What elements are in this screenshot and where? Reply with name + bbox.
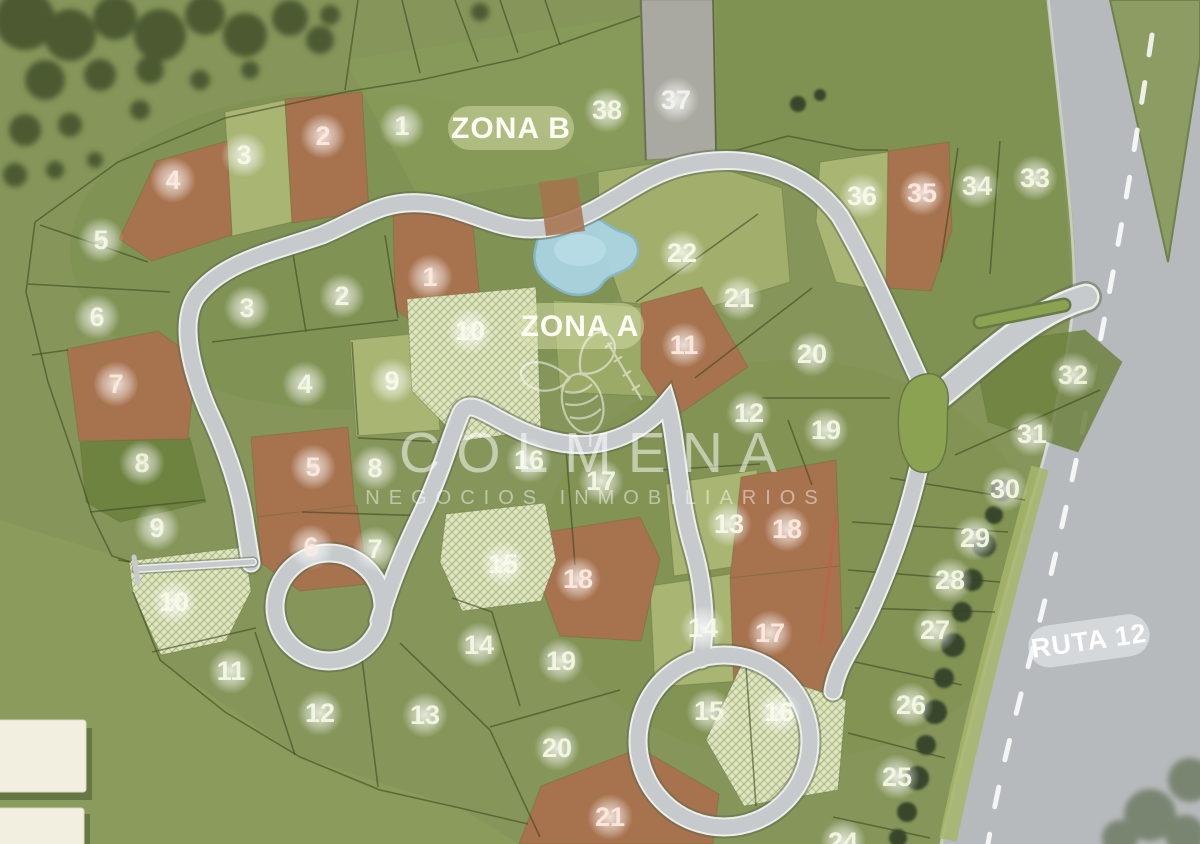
lot-marker-outer-30[interactable]: 30 (982, 466, 1028, 512)
lot-number: 13 (410, 700, 440, 730)
lot-number: 11 (670, 330, 699, 360)
lot-number: 3 (236, 140, 251, 170)
lot-number: 31 (1017, 419, 1047, 449)
lot-marker-outer-34[interactable]: 34 (954, 163, 1000, 209)
lot-number: 26 (896, 690, 926, 720)
lot-marker-outer-9[interactable]: 9 (134, 505, 180, 551)
lot-marker-outer-1[interactable]: 1 (379, 103, 425, 149)
lot-number: 2 (315, 121, 330, 151)
lot-number: 19 (546, 646, 576, 676)
lot-number: 13 (714, 509, 744, 539)
lot-number: 1 (394, 111, 409, 141)
lot-number: 8 (134, 448, 149, 478)
lot-number: 36 (847, 181, 877, 211)
info-card[interactable] (0, 808, 84, 844)
lot-number: 29 (960, 523, 990, 553)
lot-number: 14 (688, 613, 718, 643)
lot-number: 6 (89, 302, 104, 332)
lot-marker-outer-37[interactable]: 37 (653, 77, 699, 123)
lot-marker-outer-38[interactable]: 38 (584, 87, 630, 133)
lot-number: 5 (305, 452, 320, 482)
lot-marker-inner-9[interactable]: 9 (369, 358, 415, 404)
lot-marker-outer-27[interactable]: 27 (912, 607, 958, 653)
lot-marker-inner-17[interactable]: 17 (747, 610, 793, 656)
lot-number: 8 (367, 453, 382, 483)
lot-marker-outer-31[interactable]: 31 (1009, 411, 1055, 457)
lot-marker-outer-12[interactable]: 12 (297, 690, 343, 736)
lot-number: 7 (108, 369, 123, 399)
lot-number: 9 (149, 513, 164, 543)
lot-marker-inner-6[interactable]: 6 (288, 524, 334, 570)
lot-marker-outer-18[interactable]: 18 (555, 556, 601, 602)
lot-marker-inner-22[interactable]: 22 (659, 230, 705, 276)
zona-a-label: ZONA A (516, 303, 644, 349)
lot-number: 9 (384, 366, 399, 396)
lot-marker-outer-3[interactable]: 3 (221, 132, 267, 178)
lot-marker-inner-21[interactable]: 21 (716, 275, 762, 321)
lot-number: 21 (724, 283, 754, 313)
lot-marker-inner-3[interactable]: 3 (224, 285, 270, 331)
lot-number: 14 (464, 630, 494, 660)
lot-number: 16 (764, 697, 794, 727)
lot-number: 32 (1058, 360, 1088, 390)
subdivision-lot-map: 1234567891011121314151617181920212425262… (0, 0, 1200, 844)
brown-crossing-strip (539, 178, 585, 236)
lot-marker-inner-1[interactable]: 1 (407, 254, 453, 300)
lot-number: 33 (1020, 163, 1050, 193)
lot-number: 5 (93, 225, 108, 255)
lot-marker-outer-11[interactable]: 11 (208, 648, 254, 694)
lot-number: 10 (455, 316, 485, 346)
lot-marker-inner-14[interactable]: 14 (680, 605, 726, 651)
lot-number: 4 (297, 369, 312, 399)
lot-number: 35 (907, 178, 937, 208)
lot-number: 12 (305, 698, 335, 728)
lot-marker-outer-32[interactable]: 32 (1050, 352, 1096, 398)
lot-marker-inner-19[interactable]: 19 (803, 407, 849, 453)
lot-marker-outer-20[interactable]: 20 (534, 725, 580, 771)
lot-marker-outer-26[interactable]: 26 (888, 682, 934, 728)
lot-marker-outer-7[interactable]: 7 (93, 361, 139, 407)
lot-number: 19 (811, 415, 841, 445)
lot-number: 21 (595, 802, 625, 832)
lot-marker-inner-16[interactable]: 16 (756, 689, 802, 735)
lot-marker-outer-4[interactable]: 4 (150, 157, 196, 203)
lot-number: 28 (935, 565, 965, 595)
lot-number: 20 (542, 733, 572, 763)
lot-number: 15 (488, 549, 518, 579)
lot-number: 2 (334, 281, 349, 311)
zona-a-label-text: ZONA A (521, 310, 640, 343)
zona-b-label: ZONA B (448, 106, 574, 150)
lot-marker-outer-6[interactable]: 6 (74, 294, 120, 340)
lot-number: 1 (422, 262, 437, 292)
lot-marker-outer-5[interactable]: 5 (78, 217, 124, 263)
lot-marker-inner-10[interactable]: 10 (447, 308, 493, 354)
lot-number: 15 (694, 696, 724, 726)
teardrop-island (898, 374, 948, 473)
watermark-tagline: NEGOCIOS INMOBILIARIOS (365, 487, 826, 509)
lot-number: 25 (882, 762, 912, 792)
lot-marker-inner-2[interactable]: 2 (319, 273, 365, 319)
lot-marker-outer-28[interactable]: 28 (927, 557, 973, 603)
lot-marker-outer-35[interactable]: 35 (899, 170, 945, 216)
lot-number: 34 (962, 171, 992, 201)
lot-number: 6 (303, 532, 318, 562)
lot-marker-inner-20[interactable]: 20 (789, 331, 835, 377)
lot-number: 24 (828, 827, 858, 844)
lot-number: 10 (159, 587, 189, 617)
lot-marker-inner-18[interactable]: 18 (764, 506, 810, 552)
lot-number: 18 (563, 564, 593, 594)
lot-marker-inner-8[interactable]: 8 (352, 445, 398, 491)
lot-marker-outer-19[interactable]: 19 (538, 638, 584, 684)
lot-marker-outer-29[interactable]: 29 (952, 515, 998, 561)
lot-number: 18 (772, 514, 802, 544)
lot-number: 3 (239, 293, 254, 323)
lot-number: 38 (592, 95, 622, 125)
lot-number: 17 (755, 618, 785, 648)
corner-info-cards (0, 720, 92, 844)
lot-marker-outer-15[interactable]: 15 (480, 541, 526, 587)
lot-marker-inner-5[interactable]: 5 (290, 444, 336, 490)
lot-number: 22 (667, 238, 697, 268)
lot-marker-inner-7[interactable]: 7 (352, 526, 398, 572)
zona-b-label-text: ZONA B (451, 112, 571, 145)
lot-number: 30 (990, 474, 1020, 504)
lot-marker-inner-4[interactable]: 4 (282, 361, 328, 407)
lot-marker-outer-14[interactable]: 14 (456, 622, 502, 668)
lot-number: 37 (661, 85, 691, 115)
lot-marker-outer-25[interactable]: 25 (874, 754, 920, 800)
lot-marker-outer-36[interactable]: 36 (839, 173, 885, 219)
lot-marker-outer-13[interactable]: 13 (402, 692, 448, 738)
lot-marker-outer-10[interactable]: 10 (151, 579, 197, 625)
lot-marker-inner-11[interactable]: 11 (661, 322, 707, 368)
lot-marker-inner-15[interactable]: 15 (686, 688, 732, 734)
lot-marker-outer-8[interactable]: 8 (119, 440, 165, 486)
lot-number: 7 (367, 534, 382, 564)
lot-marker-outer-21[interactable]: 21 (587, 794, 633, 840)
watermark-brand: COLMENA (399, 421, 793, 485)
lot-marker-outer-2[interactable]: 2 (300, 113, 346, 159)
lot-number: 20 (797, 339, 827, 369)
lot-number: 27 (920, 615, 950, 645)
lot-marker-outer-33[interactable]: 33 (1012, 155, 1058, 201)
lot-number: 4 (165, 165, 180, 195)
lot-number: 11 (217, 656, 246, 686)
info-card[interactable] (0, 720, 86, 792)
